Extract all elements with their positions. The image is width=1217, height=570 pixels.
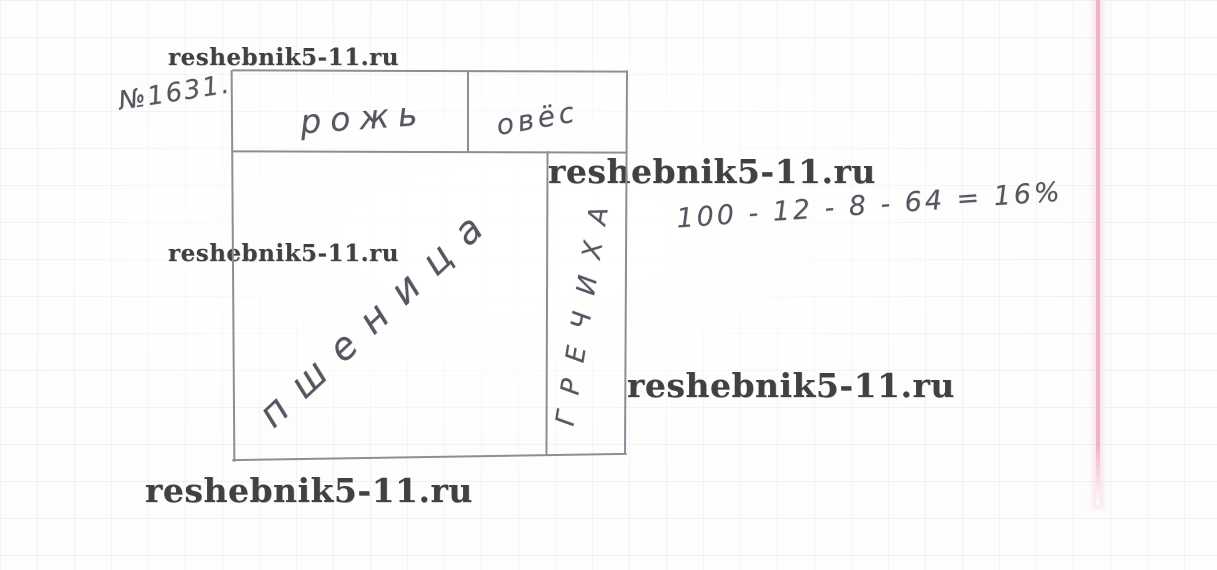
watermark-text: reshebnik5-11.ru <box>548 152 876 191</box>
watermark-text: reshebnik5-11.ru <box>168 240 399 267</box>
watermark-text: reshebnik5-11.ru <box>627 366 955 405</box>
watermark-text: reshebnik5-11.ru <box>168 44 399 71</box>
watermark-text: reshebnik5-11.ru <box>145 471 473 510</box>
notebook-margin-line <box>1096 0 1100 505</box>
diagram-divider-rye-oats <box>467 70 469 152</box>
